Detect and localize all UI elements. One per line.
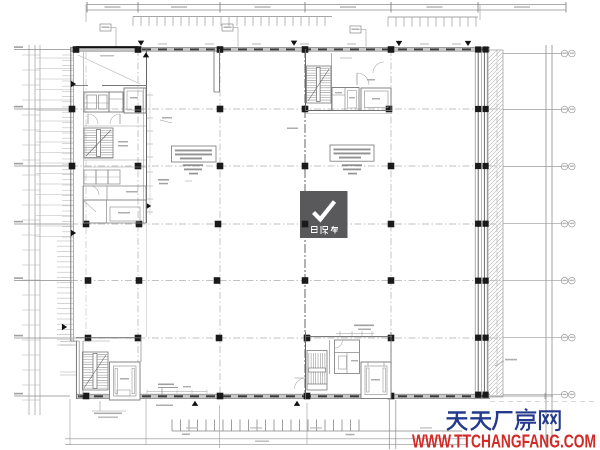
svg-text:WWW.TTCHANGFANG.COM: WWW.TTCHANGFANG.COM — [412, 432, 596, 450]
